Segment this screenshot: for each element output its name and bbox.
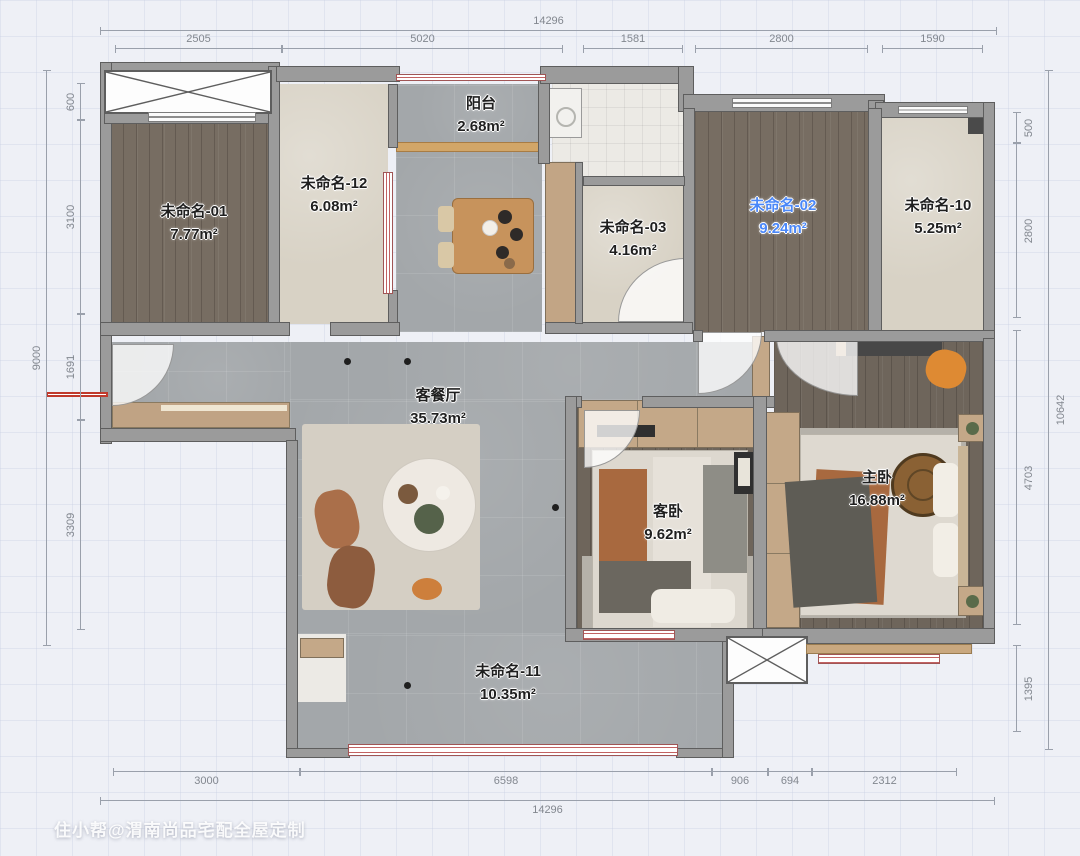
wall[interactable] [286, 440, 298, 758]
entry-door-line[interactable] [46, 392, 108, 397]
wall[interactable] [753, 396, 767, 640]
dining-chair[interactable] [438, 206, 454, 232]
room-label-02-selected[interactable]: 未命名-02 9.24m² [750, 194, 817, 240]
wall[interactable] [683, 108, 695, 334]
plate [504, 258, 515, 269]
washer-drum-icon [556, 107, 576, 127]
watermark: 住小帮@渭南尚品宅配全屋定制 [54, 816, 306, 841]
room-label-12[interactable]: 未命名-12 6.08m² [301, 172, 368, 218]
room-label-master[interactable]: 主卧 16.88m² [849, 466, 905, 512]
floor-cushion[interactable] [412, 578, 442, 600]
wall[interactable] [575, 162, 583, 324]
plant-pot[interactable] [414, 504, 444, 534]
nightstand[interactable] [958, 414, 986, 442]
room-name: 未命名-11 [475, 660, 541, 683]
room-name: 未命名-12 [301, 172, 368, 195]
room-name: 客卧 [644, 500, 692, 523]
room-label-guest[interactable]: 客卧 9.62m² [644, 500, 692, 546]
cabinet-top [161, 405, 287, 411]
window[interactable] [583, 630, 675, 640]
room-area: 9.62m² [644, 523, 692, 546]
nook-cabinet[interactable] [300, 638, 344, 658]
room-area: 2.68m² [457, 115, 505, 138]
dim-top: 1590 [882, 48, 983, 49]
room-name: 客餐厅 [410, 384, 466, 407]
nightstand[interactable] [958, 586, 986, 616]
dim-left: 3100 [80, 120, 81, 314]
coffee-table[interactable] [398, 484, 418, 504]
window[interactable] [732, 98, 832, 108]
room-label-balcony[interactable]: 阳台 2.68m² [457, 92, 505, 138]
dim-left: 3309 [80, 420, 81, 630]
window[interactable] [898, 106, 968, 114]
dining-chair[interactable] [438, 242, 454, 268]
wall[interactable] [868, 108, 882, 334]
room-area: 16.88m² [849, 489, 905, 512]
room-name: 未命名-03 [600, 216, 667, 239]
dim-bottom: 3000 [113, 771, 300, 772]
downlight-dot [404, 358, 411, 365]
pillow [933, 463, 959, 517]
plate [482, 220, 498, 236]
downlight-dot [404, 682, 411, 689]
wall[interactable] [276, 66, 400, 82]
wall[interactable] [693, 330, 703, 342]
hall-cabinet[interactable] [545, 162, 577, 324]
window-sill [806, 644, 972, 654]
dim-bottom: 694 [768, 771, 812, 772]
wall[interactable] [565, 396, 577, 640]
room-floor-corridor[interactable] [290, 342, 762, 400]
plant-icon [966, 595, 979, 608]
dim-left: 1691 [80, 314, 81, 420]
room-area: 35.73m² [410, 407, 466, 430]
room-name: 阳台 [457, 92, 505, 115]
room-label-living[interactable]: 客餐厅 35.73m² [410, 384, 466, 430]
room-area: 9.24m² [750, 217, 817, 240]
plate [496, 246, 509, 259]
plate [510, 228, 523, 241]
wall[interactable] [983, 102, 995, 338]
room-name: 未命名-02 [750, 194, 817, 217]
art-canvas [738, 458, 750, 486]
dim-bottom: 2312 [812, 771, 957, 772]
dim-top: 5020 [282, 48, 563, 49]
shoe-cabinet[interactable] [112, 402, 290, 428]
room-label-01[interactable]: 未命名-01 7.77m² [161, 200, 228, 246]
wall[interactable] [388, 84, 398, 148]
room-area: 5.25m² [905, 217, 972, 240]
wall[interactable] [330, 322, 400, 336]
dim-right-total: 10642 [1048, 70, 1049, 750]
dim-top-total: 14296 [100, 30, 997, 31]
room-label-10[interactable]: 未命名-10 5.25m² [905, 194, 972, 240]
room-area: 4.16m² [600, 239, 667, 262]
dim-right: 4703 [1016, 330, 1017, 625]
dim-right: 500 [1016, 112, 1017, 143]
wall[interactable] [538, 80, 550, 164]
room-label-11[interactable]: 未命名-11 10.35m² [475, 660, 541, 706]
master-bed[interactable] [800, 434, 962, 616]
window[interactable] [396, 74, 546, 81]
ac-unit-icon [968, 116, 984, 134]
wall[interactable] [540, 66, 690, 84]
dim-bottom: 906 [712, 771, 768, 772]
tray [436, 486, 450, 500]
room-name: 未命名-10 [905, 194, 972, 217]
washing-machine[interactable] [548, 88, 582, 138]
downlight-dot [344, 358, 351, 365]
window[interactable] [348, 744, 678, 756]
plate [498, 210, 512, 224]
dim-right: 1395 [1016, 645, 1017, 732]
pillow [933, 523, 959, 577]
floorplan-canvas[interactable]: 未命名-01 7.77m² 未命名-12 6.08m² 阳台 2.68m² 未命… [0, 0, 1080, 856]
wall[interactable] [286, 748, 350, 758]
balcony-door-sill[interactable] [396, 142, 542, 152]
wall[interactable] [100, 322, 290, 336]
window[interactable] [383, 172, 393, 294]
window[interactable] [818, 654, 940, 664]
room-area: 7.77m² [161, 223, 228, 246]
room-area: 6.08m² [301, 195, 368, 218]
wall[interactable] [545, 322, 693, 334]
dim-bottom: 6598 [300, 771, 712, 772]
plant-icon [966, 422, 979, 435]
window[interactable] [148, 112, 256, 122]
wall[interactable] [983, 338, 995, 640]
headboard [958, 446, 968, 606]
dim-bottom-total: 14296 [100, 800, 995, 801]
dim-right: 2800 [1016, 143, 1017, 318]
dim-top: 2505 [115, 48, 282, 49]
dim-left: 600 [80, 83, 81, 120]
downlight-dot [552, 504, 559, 511]
room-name: 未命名-01 [161, 200, 228, 223]
dim-top: 1581 [583, 48, 683, 49]
shaft-hatch [726, 636, 808, 684]
room-area: 10.35m² [475, 683, 541, 706]
room-label-03[interactable]: 未命名-03 4.16m² [600, 216, 667, 262]
dim-left-total: 9000 [46, 70, 47, 646]
wall[interactable] [100, 428, 296, 442]
room-name: 主卧 [849, 466, 905, 489]
void-hatch [104, 70, 272, 114]
dim-top: 2800 [695, 48, 868, 49]
wall[interactable] [583, 176, 685, 186]
wall[interactable] [764, 330, 995, 342]
pillow [651, 589, 735, 623]
